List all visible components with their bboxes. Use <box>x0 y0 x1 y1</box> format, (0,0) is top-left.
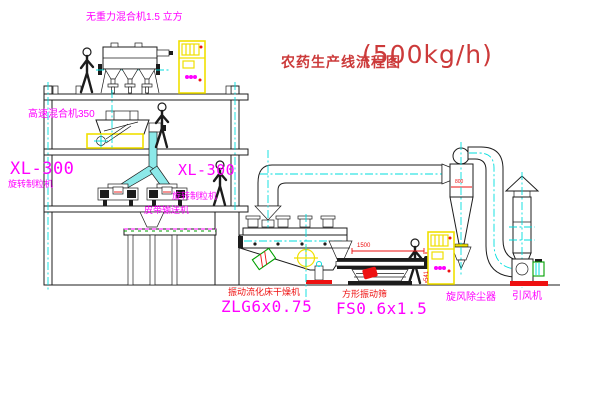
process-flow-diagram: 农药生产线流程图 (500kg/h) 无重力混合机1.5 立方 高速混合机350… <box>0 0 600 403</box>
dim-sieve-length: 1500 <box>357 243 370 249</box>
label-high-speed-mixer: 高速混合机350 <box>28 110 95 120</box>
label-dryer-name: 振动流化床干燥机 <box>228 288 300 297</box>
label-dryer-model: ZLG6x0.75 <box>221 299 312 315</box>
label-gravity-mixer: 无重力混合机1.5 立方 <box>86 13 183 23</box>
control-cabinet-icon <box>179 41 205 93</box>
label-belt-conveyor: 皮带输送机 <box>144 206 189 215</box>
diagram-title-capacity: (500kg/h) <box>362 42 493 67</box>
granulator-left <box>98 184 138 206</box>
label-cyclone: 旋风除尘器 <box>446 293 496 303</box>
label-sieve-model: FS0.6x1.5 <box>336 301 427 317</box>
label-granulator-left-name: 旋转制粒机 <box>8 180 53 189</box>
bucket-elevator-column <box>215 212 239 285</box>
label-granulator-left-model: XL-300 <box>10 161 74 178</box>
belt-conveyor <box>124 212 216 285</box>
label-sieve-name: 方形振动筛 <box>342 290 387 299</box>
dim-sieve-height: 541 <box>424 271 430 281</box>
control-cabinet-icon <box>428 232 454 284</box>
label-fan: 引风机 <box>512 292 542 302</box>
label-granulator-right-model: XL-300 <box>178 163 235 178</box>
induced-draft-fan <box>510 259 548 286</box>
dim-cyclone: 800 <box>455 180 463 185</box>
person-icon <box>81 48 93 92</box>
label-granulator-right-name: 旋转制粒机 <box>172 192 217 201</box>
gravity-free-mixer <box>96 43 173 93</box>
